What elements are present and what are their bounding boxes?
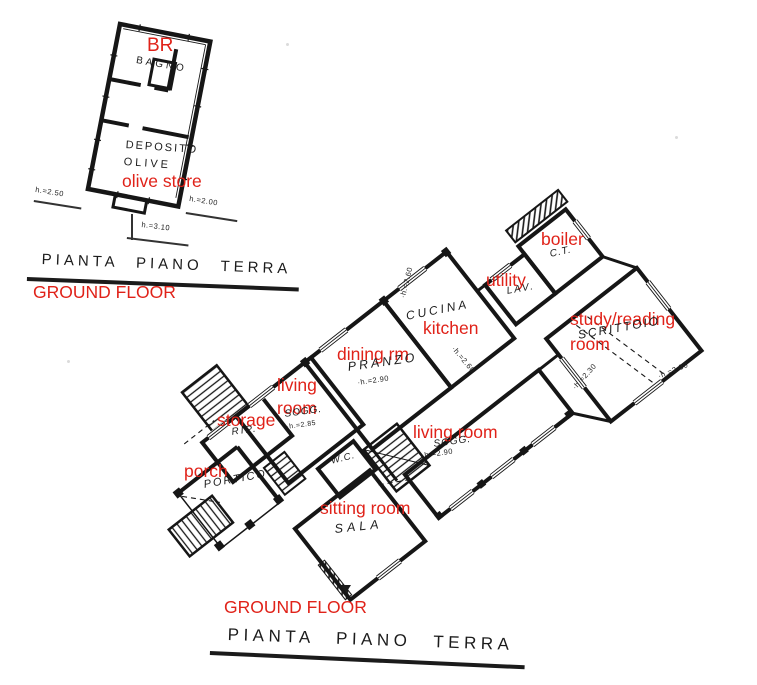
scan-speck — [286, 43, 289, 46]
scan-speck — [675, 136, 678, 139]
annotation-sitting-room: sitting room — [320, 500, 410, 518]
scanned-floor-plan-page: BR BAGNO DEPOSITO OLIVE olive store h.=2… — [0, 0, 757, 685]
main-building-walls — [107, 122, 706, 679]
floor-plan-drawing — [0, 0, 757, 685]
annotation-ground-floor-upper: GROUND FLOOR — [33, 284, 176, 302]
annotation-olive-store: olive store — [122, 173, 202, 191]
dimension-arrow — [341, 585, 351, 593]
dimension-line — [131, 214, 133, 240]
scan-speck — [67, 360, 70, 363]
annotation-ground-floor-lower: GROUND FLOOR — [224, 599, 367, 617]
sitting-room-walls — [295, 470, 425, 599]
living-large-room-walls — [405, 370, 573, 518]
sala-grate — [318, 560, 351, 600]
annotation-bathroom: BR — [147, 36, 173, 55]
annotation-living-line1: living — [277, 377, 317, 395]
wall-piers — [300, 247, 577, 529]
annotation-kitchen: kitchen — [423, 320, 478, 338]
